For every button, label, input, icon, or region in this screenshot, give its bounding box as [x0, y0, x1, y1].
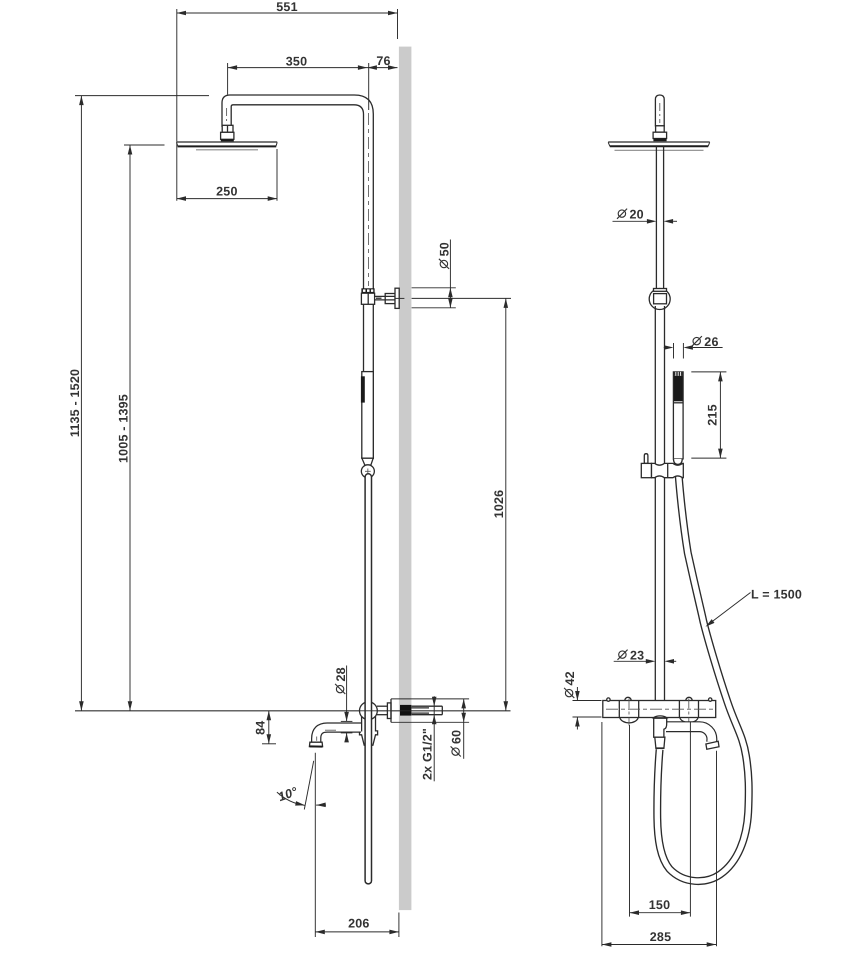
- svg-text:350: 350: [286, 55, 307, 69]
- svg-text:76: 76: [376, 54, 390, 68]
- svg-text:42: 42: [563, 671, 577, 685]
- svg-text:1135 - 1520: 1135 - 1520: [68, 369, 82, 437]
- svg-text:84: 84: [254, 721, 268, 735]
- svg-text:1026: 1026: [492, 490, 506, 519]
- svg-text:551: 551: [276, 0, 297, 14]
- svg-text:285: 285: [650, 930, 671, 944]
- svg-text:60: 60: [449, 730, 463, 744]
- svg-text:250: 250: [216, 185, 237, 199]
- svg-text:26: 26: [704, 335, 718, 349]
- svg-text:150: 150: [649, 898, 670, 912]
- svg-text:23: 23: [630, 648, 644, 662]
- svg-text:50: 50: [438, 242, 452, 256]
- svg-text:20: 20: [630, 207, 644, 221]
- svg-text:206: 206: [348, 917, 369, 931]
- svg-text:2x G1/2": 2x G1/2": [421, 728, 435, 780]
- svg-text:215: 215: [706, 404, 720, 425]
- svg-text:28: 28: [334, 667, 348, 681]
- svg-text:L = 1500: L = 1500: [751, 587, 802, 601]
- svg-text:1005 - 1395: 1005 - 1395: [117, 394, 131, 463]
